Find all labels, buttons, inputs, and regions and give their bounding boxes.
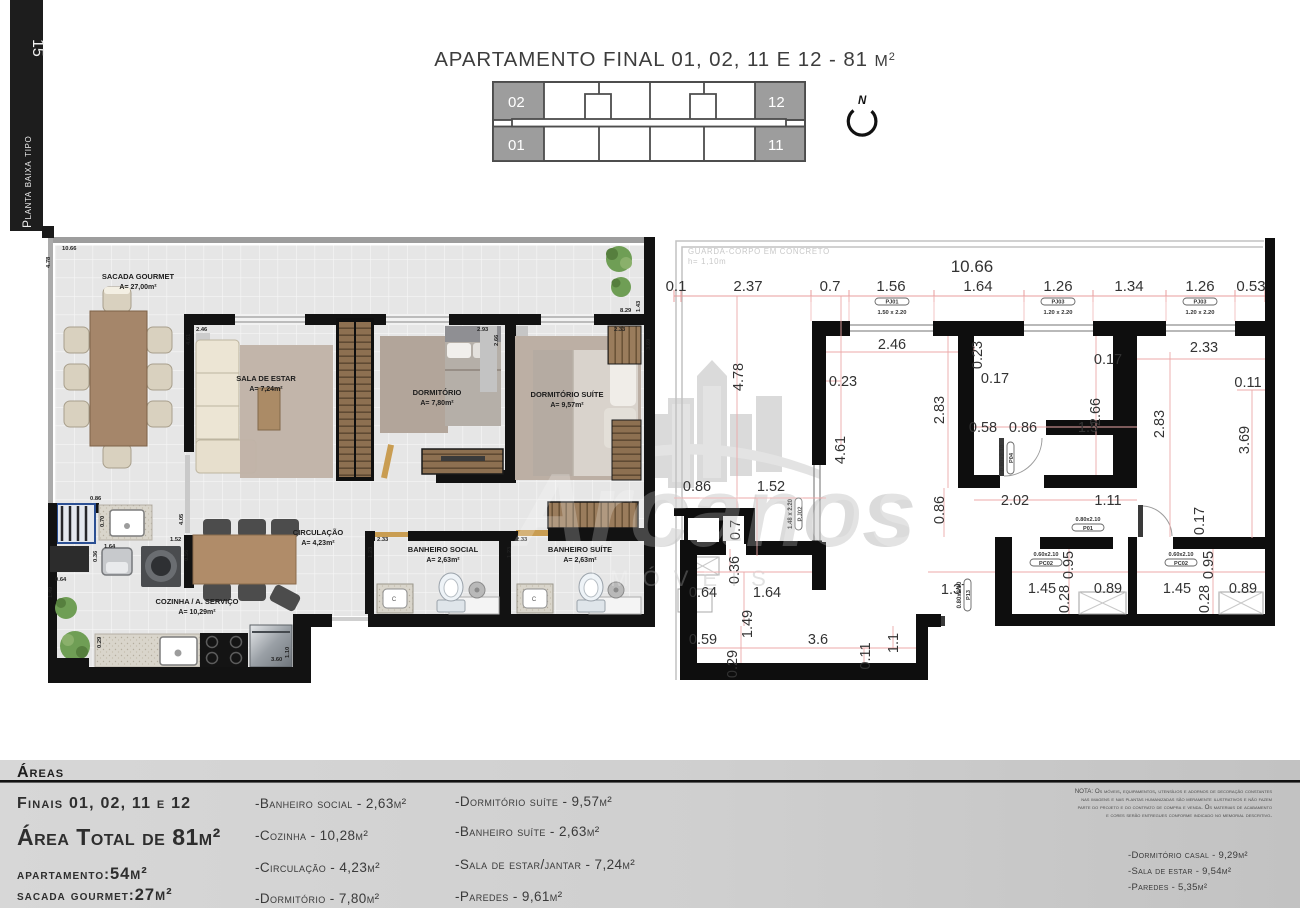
svg-text:0.64: 0.64: [55, 577, 67, 583]
svg-text:2.66: 2.66: [1088, 398, 1104, 426]
svg-text:1.64: 1.64: [104, 544, 116, 550]
svg-text:-Paredes - 5,35m²: -Paredes - 5,35m²: [1128, 882, 1207, 893]
svg-text:0.17: 0.17: [1094, 352, 1122, 368]
svg-text:0.53: 0.53: [1236, 278, 1265, 295]
svg-text:COZINHA / A. SERVIÇO: COZINHA / A. SERVIÇO: [155, 597, 238, 606]
svg-text:BANHEIRO SOCIAL: BANHEIRO SOCIAL: [408, 545, 479, 554]
svg-text:0.95: 0.95: [1201, 551, 1217, 579]
svg-text:GUARDA-CORPO EM CONCRETO: GUARDA-CORPO EM CONCRETO: [688, 247, 830, 256]
svg-text:DORMITÓRIO SUÍTE: DORMITÓRIO SUÍTE: [531, 390, 604, 399]
svg-text:01: 01: [508, 137, 525, 154]
svg-text:A= 2,63m²: A= 2,63m²: [426, 557, 460, 564]
svg-text:4.78: 4.78: [731, 363, 747, 391]
svg-text:NOTA: Os móveis, equipamentos,: NOTA: Os móveis, equipamentos, utensílio…: [1075, 788, 1273, 795]
svg-text:PC02: PC02: [1039, 561, 1053, 567]
svg-text:APARTAMENTO FINAL 01, 02, 11 E: APARTAMENTO FINAL 01, 02, 11 E 12 - 81 M…: [434, 48, 896, 71]
svg-text:2.46: 2.46: [878, 337, 906, 353]
svg-text:1.1: 1.1: [886, 633, 902, 653]
svg-text:P01: P01: [1083, 526, 1093, 532]
svg-text:-Banheiro social - 2,63m²: -Banheiro social - 2,63m²: [255, 796, 407, 811]
svg-text:0.17: 0.17: [981, 371, 1009, 387]
svg-text:P13: P13: [966, 590, 972, 600]
svg-text:0.86: 0.86: [90, 496, 102, 502]
svg-text:-Sala de estar - 9,54m²: -Sala de estar - 9,54m²: [1128, 866, 1231, 877]
svg-text:Área Total de 81m²: Área Total de 81m²: [17, 823, 221, 850]
svg-text:A= 7,24m²: A= 7,24m²: [249, 386, 283, 393]
svg-text:1.26: 1.26: [1043, 278, 1072, 295]
svg-text:0.86: 0.86: [932, 496, 948, 524]
svg-text:3.6: 3.6: [808, 632, 828, 648]
svg-text:-Circulação - 4,23m²: -Circulação - 4,23m²: [255, 860, 380, 875]
svg-text:A= 27,00m²: A= 27,00m²: [119, 284, 157, 291]
svg-text:1.64: 1.64: [963, 278, 992, 295]
svg-text:4.05: 4.05: [179, 513, 185, 525]
svg-text:4.78: 4.78: [46, 256, 52, 268]
svg-text:11: 11: [768, 137, 784, 154]
svg-text:3.69: 3.69: [1237, 426, 1253, 454]
svg-text:-Dormitório suíte - 9,57m²: -Dormitório suíte - 9,57m²: [455, 794, 612, 809]
svg-text:Áreas: Áreas: [17, 762, 64, 781]
svg-text:PJ03: PJ03: [1193, 300, 1206, 306]
svg-text:-Dormitório - 7,80m²: -Dormitório - 7,80m²: [255, 891, 380, 906]
svg-text:3.69: 3.69: [646, 338, 652, 350]
svg-text:02: 02: [508, 94, 525, 111]
svg-text:CIRCULAÇÃO: CIRCULAÇÃO: [293, 528, 344, 537]
svg-text:12: 12: [768, 94, 785, 111]
svg-text:1.56: 1.56: [876, 278, 905, 295]
svg-text:1.20 x 2.20: 1.20 x 2.20: [1043, 310, 1072, 316]
svg-text:1.45: 1.45: [1163, 581, 1191, 597]
svg-text:1.50 x 2.20: 1.50 x 2.20: [877, 310, 906, 316]
svg-text:1.49: 1.49: [48, 586, 54, 598]
svg-text:IMÓVEIS: IMÓVEIS: [590, 566, 780, 591]
svg-text:-Dormitório casal - 9,29m²: -Dormitório casal - 9,29m²: [1128, 850, 1248, 861]
svg-text:-Paredes - 9,61m²: -Paredes - 9,61m²: [455, 889, 563, 904]
svg-text:10.66: 10.66: [62, 246, 77, 252]
svg-text:2.33: 2.33: [614, 327, 626, 333]
svg-text:0.95: 0.95: [1061, 551, 1077, 579]
svg-text:1.10: 1.10: [285, 647, 291, 658]
svg-text:1.49: 1.49: [740, 610, 756, 638]
svg-text:2.46: 2.46: [196, 327, 208, 333]
svg-text:Finais 01, 02, 11 e 12: Finais 01, 02, 11 e 12: [17, 795, 191, 812]
svg-text:0.29: 0.29: [97, 636, 103, 648]
svg-text:2.33: 2.33: [1190, 340, 1218, 356]
svg-text:2.37: 2.37: [733, 278, 762, 295]
svg-text:0.80x2.10: 0.80x2.10: [957, 581, 963, 608]
svg-text:2.83: 2.83: [932, 396, 948, 424]
svg-text:0.59: 0.59: [689, 632, 717, 648]
svg-text:A= 4,23m²: A= 4,23m²: [301, 540, 335, 547]
svg-text:Arcanos: Arcanos: [511, 453, 930, 569]
svg-text:C: C: [392, 597, 397, 603]
svg-text:nas imagens e nas plantas huma: nas imagens e nas plantas humanizadas sã…: [1081, 796, 1272, 803]
svg-text:1.43: 1.43: [636, 300, 642, 312]
svg-text:0.23: 0.23: [970, 341, 986, 369]
svg-text:0.23: 0.23: [829, 374, 857, 390]
svg-text:2.33: 2.33: [377, 537, 389, 543]
svg-text:1.23: 1.23: [368, 546, 374, 558]
svg-text:8.29: 8.29: [620, 308, 632, 314]
svg-text:1.52: 1.52: [170, 537, 181, 543]
svg-text:sacada gourmet:27m²: sacada gourmet:27m²: [17, 886, 173, 904]
svg-text:0.1: 0.1: [666, 278, 687, 295]
svg-text:3.60: 3.60: [271, 657, 282, 663]
svg-text:0.11: 0.11: [1234, 375, 1261, 391]
svg-text:1.20 x 2.20: 1.20 x 2.20: [1185, 310, 1214, 316]
svg-text:0.58: 0.58: [969, 420, 997, 436]
svg-text:15: 15: [29, 39, 46, 57]
svg-text:0.7: 0.7: [820, 278, 841, 295]
svg-text:0.11: 0.11: [858, 642, 874, 669]
svg-text:parte do projeto e do contrato: parte do projeto e do contrato de compra…: [1078, 804, 1272, 811]
svg-text:2.66: 2.66: [494, 334, 500, 346]
svg-text:0.89: 0.89: [1094, 581, 1122, 597]
svg-text:e cores serão entregues confor: e cores serão entregues conforme indicad…: [1106, 812, 1272, 819]
svg-text:0.89: 0.89: [1229, 581, 1257, 597]
svg-text:1.11: 1.11: [1094, 493, 1121, 509]
svg-text:C: C: [532, 597, 537, 603]
svg-text:Planta baixa tipo: Planta baixa tipo: [20, 136, 34, 228]
svg-text:-Banheiro suíte - 2,63m²: -Banheiro suíte - 2,63m²: [455, 824, 600, 839]
svg-text:DORMITÓRIO: DORMITÓRIO: [413, 388, 462, 397]
svg-text:0.80x2.10: 0.80x2.10: [1076, 517, 1101, 523]
svg-text:2.83: 2.83: [1152, 410, 1168, 438]
svg-text:PJ03: PJ03: [1051, 300, 1064, 306]
svg-text:SACADA GOURMET: SACADA GOURMET: [102, 272, 175, 281]
svg-text:A= 7,80m²: A= 7,80m²: [420, 400, 454, 407]
svg-text:h= 1,10m: h= 1,10m: [688, 257, 726, 266]
svg-text:10.66: 10.66: [951, 257, 994, 276]
svg-text:A= 9,57m²: A= 9,57m²: [550, 402, 584, 409]
svg-text:0.28: 0.28: [1197, 585, 1213, 613]
svg-text:0.86: 0.86: [1009, 420, 1037, 436]
svg-text:-Cozinha - 10,28m²: -Cozinha - 10,28m²: [255, 828, 368, 843]
svg-text:0.70: 0.70: [100, 516, 106, 527]
svg-text:2.93: 2.93: [477, 327, 489, 333]
svg-text:PJ01: PJ01: [885, 300, 898, 306]
svg-text:1.45: 1.45: [1028, 581, 1056, 597]
svg-text:4.61: 4.61: [186, 333, 192, 345]
svg-text:0.17: 0.17: [1192, 507, 1208, 535]
svg-text:-Sala de estar/jantar - 7,24m²: -Sala de estar/jantar - 7,24m²: [455, 857, 635, 872]
svg-text:P04: P04: [1009, 452, 1015, 463]
svg-text:SALA DE ESTAR: SALA DE ESTAR: [236, 374, 296, 383]
svg-text:0.29: 0.29: [725, 650, 741, 678]
svg-text:0.56: 0.56: [184, 549, 190, 561]
svg-text:1.26: 1.26: [1185, 278, 1214, 295]
svg-text:apartamento:54m²: apartamento:54m²: [17, 865, 148, 883]
svg-text:0.60x2.10: 0.60x2.10: [1169, 552, 1194, 558]
svg-text:1.23: 1.23: [507, 546, 513, 558]
svg-text:N: N: [858, 95, 867, 107]
svg-text:0.80x2.10: 0.80x2.10: [1000, 444, 1006, 471]
svg-text:0.28: 0.28: [1057, 585, 1073, 613]
svg-text:1.34: 1.34: [1114, 278, 1143, 295]
svg-text:PC02: PC02: [1174, 561, 1188, 567]
svg-text:2.02: 2.02: [1001, 493, 1029, 509]
svg-text:0.60x2.10: 0.60x2.10: [1034, 552, 1059, 558]
svg-text:0.36: 0.36: [93, 550, 99, 562]
svg-text:A= 10,29m²: A= 10,29m²: [178, 609, 216, 616]
